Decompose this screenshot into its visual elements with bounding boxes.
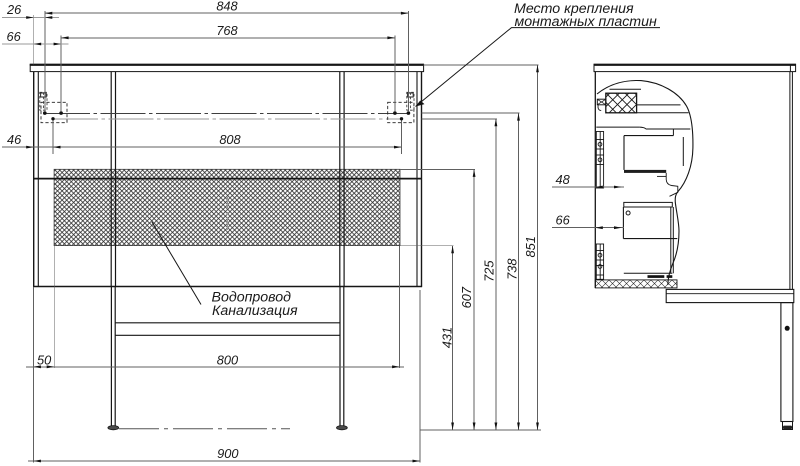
svg-text:50: 50 (37, 353, 52, 368)
svg-text:808: 808 (219, 132, 241, 147)
svg-text:Канализация: Канализация (212, 303, 298, 319)
svg-text:607: 607 (459, 286, 474, 308)
svg-text:66: 66 (7, 29, 22, 44)
svg-text:26: 26 (6, 2, 22, 17)
svg-text:851: 851 (523, 236, 538, 257)
svg-text:738: 738 (505, 258, 520, 280)
svg-text:800: 800 (217, 353, 239, 368)
svg-text:768: 768 (216, 23, 238, 38)
svg-text:46: 46 (7, 132, 22, 147)
svg-text:431: 431 (440, 327, 455, 348)
svg-text:66: 66 (556, 213, 571, 228)
svg-text:монтажных пластин: монтажных пластин (515, 14, 658, 30)
svg-text:725: 725 (482, 260, 497, 282)
svg-text:48: 48 (556, 172, 571, 187)
svg-text:900: 900 (217, 446, 239, 461)
svg-text:848: 848 (216, 0, 238, 14)
